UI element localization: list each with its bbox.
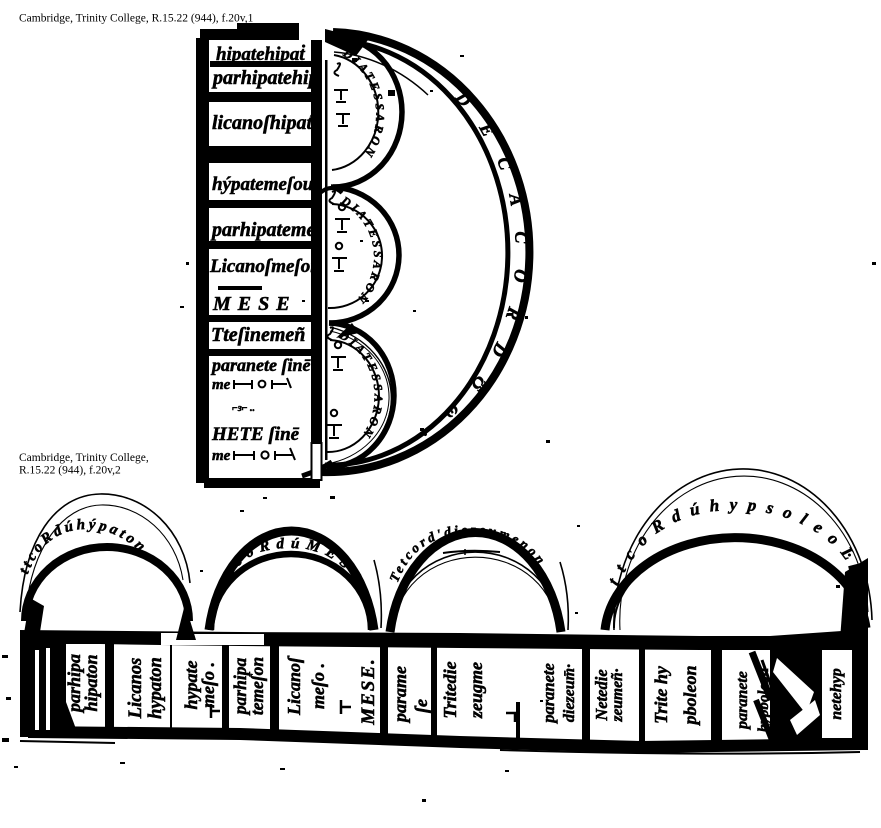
svg-text:me: me (212, 448, 231, 464)
svg-text:paranete: paranete (734, 671, 751, 731)
svg-text:Trite hy: Trite hy (651, 665, 671, 724)
svg-text:paranete: paranete (539, 663, 558, 725)
svg-text:parhipatehip: parhipatehip (211, 67, 319, 89)
svg-text:zeumeñ·: zeumeñ· (609, 668, 626, 722)
svg-text:ſe: ſe (411, 699, 431, 713)
svg-text:zeugme: zeugme (466, 662, 486, 719)
svg-text:⌐ɜ⌐ ..: ⌐ɜ⌐ .. (232, 403, 255, 414)
svg-text:hipatehipaṫ: hipatehipaṫ (216, 44, 305, 65)
svg-text:Tteſinemeñ: Tteſinemeñ (211, 324, 305, 346)
svg-text:Tritedie: Tritedie (440, 661, 460, 718)
svg-text:netehyp: netehyp (828, 668, 845, 720)
svg-text:R.15.22 (944), f.20v,2: R.15.22 (944), f.20v,2 (19, 465, 121, 477)
svg-text:parhipahipaton: parhipahipaton (64, 654, 101, 714)
svg-text:pboleon: pboleon (680, 665, 700, 726)
svg-text:Cambridge, Trinity College,: Cambridge, Trinity College, (19, 452, 149, 464)
svg-text:MESE.: MESE. (358, 657, 379, 726)
svg-text:Licanoſmeſon: Licanoſmeſon (209, 256, 321, 277)
svg-text:Licanoshypaton: Licanoshypaton (126, 657, 166, 719)
svg-text:diezeum̄·: diezeum̄· (561, 664, 578, 722)
svg-text:MESE: MESE (212, 293, 297, 315)
svg-text:Cambridge, Trinity College, R.: Cambridge, Trinity College, R.15.22 (944… (19, 13, 254, 25)
svg-text:me: me (212, 377, 231, 393)
svg-text:hypatemeſo .: hypatemeſo . (181, 660, 218, 709)
svg-text:parhipateme: parhipateme (210, 219, 315, 241)
svg-text:parhipatemeſon: parhipatemeſon (230, 657, 267, 716)
svg-text:hýpatemeſou: hýpatemeſou (212, 174, 313, 195)
svg-text:licanoſhipat́: licanoſhipat́ (212, 112, 316, 134)
svg-text:HETE ſinē: HETE ſinē (211, 424, 300, 445)
svg-text:paranete ſinē: paranete ſinē (210, 355, 312, 375)
svg-text:parame: parame (390, 666, 410, 724)
